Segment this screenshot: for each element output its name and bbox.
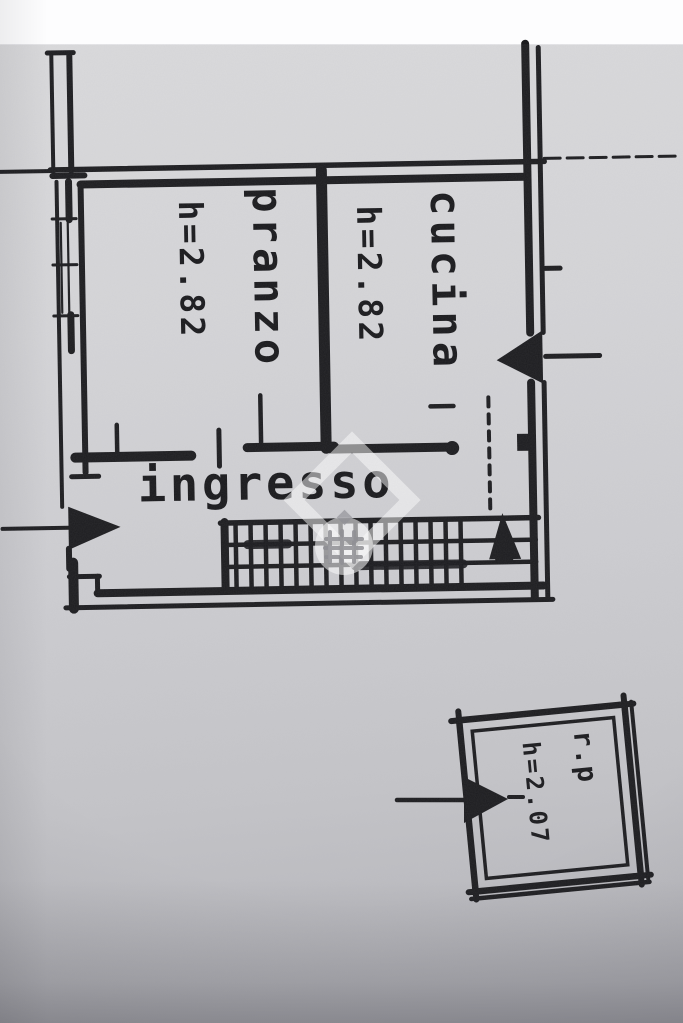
floor-plan-photo: pranzo h=2.82 cucina h=2.82 ingresso xyxy=(0,0,683,1023)
floor-plan-drawing: pranzo h=2.82 cucina h=2.82 ingresso xyxy=(0,0,683,1023)
paper-grain-texture xyxy=(0,44,683,1023)
